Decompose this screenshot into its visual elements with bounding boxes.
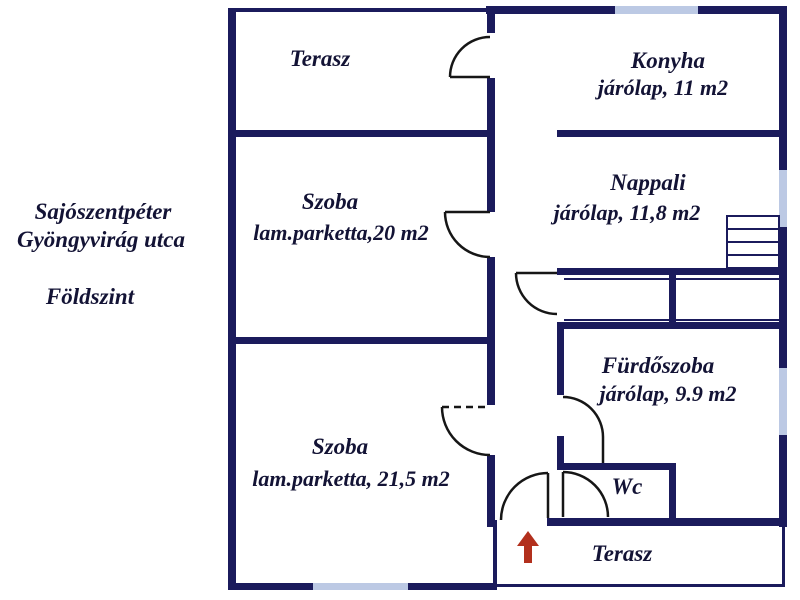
wall-wc-top [557,463,676,470]
window-bathroom-right [779,368,787,435]
stairs [727,216,779,268]
wall-kitchen-living-divider [557,130,786,137]
address-street: Gyöngyvirág utca [17,227,185,253]
floor-plan: Sajószentpéter Gyöngyvirág utca Földszin… [0,0,800,600]
wall-outer-right-lower [779,435,787,527]
wall-corridor-top [557,268,786,275]
wall-terrace-bottom-top [547,518,779,526]
address-floor: Földszint [46,284,134,310]
room-label-wc: Wc [612,474,643,500]
wall-terrace-top-thin [232,8,490,12]
wall-terrace-right-thin [782,527,785,587]
door-terrace-kitchen [450,37,490,77]
window-kitchen-top [615,6,698,14]
door-wc [563,472,608,517]
room-label-bathroom: Fürdőszoba [602,353,714,379]
entrance-arrow-icon [517,531,539,563]
room-detail-room20: lam.parketta,20 m2 [253,220,428,246]
window-room-bottom [313,583,408,590]
room-label-room21: Szoba [312,434,368,460]
wall-center-vertical-2 [487,78,495,212]
room-label-room20: Szoba [302,189,358,215]
wall-outer-bottom-right [408,583,497,590]
wall-center-vertical-4 [487,455,495,527]
door-livingroom-hall [516,273,557,314]
window-livingroom-right [779,170,787,227]
room-label-terrace-bottom: Terasz [592,541,653,567]
wall-outer-right-upper [779,6,787,170]
wall-terrace-room-divider [228,130,494,137]
wall-outer-left [228,8,236,590]
room-label-kitchen: Konyha [631,48,705,74]
wall-center-vertical-1 [487,8,495,33]
wall-corridor-bottom [557,322,786,329]
wall-rooms-divider [228,337,494,344]
door-room20 [445,212,490,257]
door-room21 [442,407,490,455]
door-bathroom [563,397,603,463]
room-detail-kitchen: járólap, 11 m2 [598,75,728,101]
room-label-terrace-top: Terasz [290,46,351,72]
wall-terrace-left-thin [493,520,497,587]
room-detail-room21: lam.parketta, 21,5 m2 [252,466,449,492]
wall-wc-right [669,463,676,520]
room-detail-livingroom: járólap, 11,8 m2 [554,200,701,226]
wall-bathroom-left-upper [557,329,564,395]
room-detail-bathroom: járólap, 9.9 m2 [600,381,737,407]
wall-center-vertical-3 [487,257,495,405]
wall-outer-right-mid [779,227,787,368]
hall-closet [564,275,779,322]
room-label-livingroom: Nappali [610,170,685,196]
door-hall-terrace [501,473,548,520]
wall-terrace-bottom-thin [493,584,785,587]
wall-outer-bottom-left [228,583,313,590]
address-city: Sajószentpéter [35,199,172,225]
